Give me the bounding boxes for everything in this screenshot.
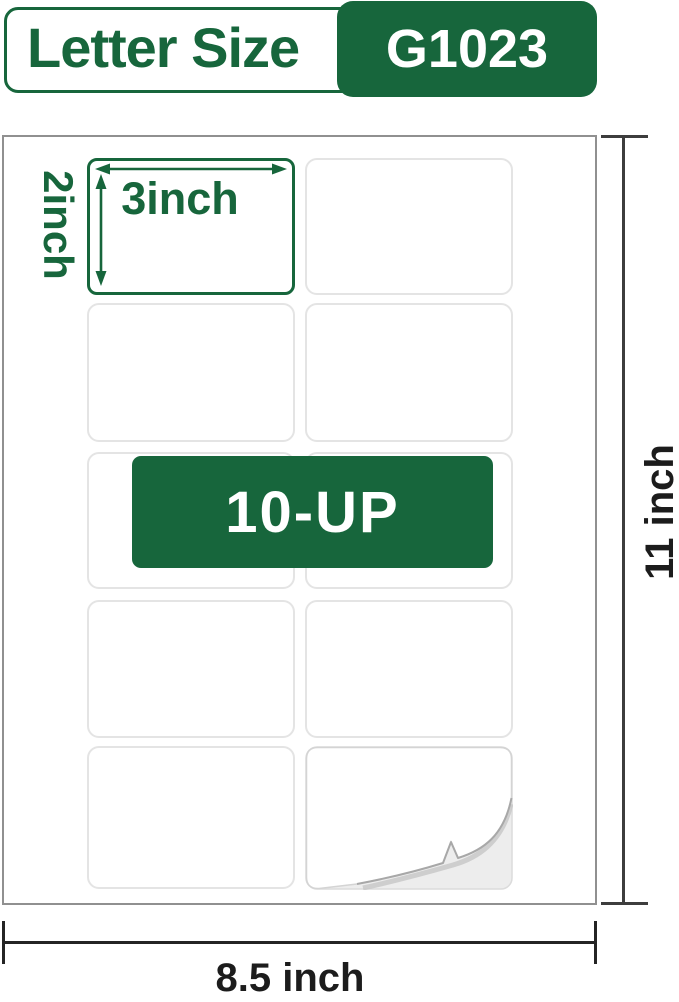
height-dimension-line: [622, 136, 625, 905]
label-cell-highlighted: 3inch: [87, 158, 295, 295]
label-sheet: 3inch 2inch 10-UP: [2, 135, 597, 905]
size-label-text: Letter Size: [27, 15, 299, 80]
label-cell: [305, 303, 513, 442]
label-width-text: 3inch: [100, 173, 260, 225]
sheet-height-text: 11 inch: [639, 424, 679, 600]
product-code-badge: G1023: [337, 1, 597, 97]
height-dimension-top-tick: [601, 135, 648, 138]
label-cell: [305, 600, 513, 738]
product-diagram: Letter Size G1023 3inch 2inch: [0, 0, 679, 1002]
width-dimension-line: [3, 941, 597, 944]
width-dimension-left-tick: [2, 921, 5, 964]
peeled-label-cell: [305, 746, 513, 890]
width-dimension-right-tick: [594, 921, 597, 964]
label-cell: [87, 600, 295, 738]
label-cell: [305, 158, 513, 295]
sheet-width-text: 8.5 inch: [115, 956, 465, 1001]
product-code-text: G1023: [386, 18, 548, 80]
height-dimension-bottom-tick: [601, 902, 648, 905]
label-height-text: 2inch: [36, 144, 80, 306]
count-banner-text: 10-UP: [225, 479, 399, 546]
count-banner: 10-UP: [132, 456, 493, 568]
label-cell: [87, 303, 295, 442]
label-cell: [87, 746, 295, 889]
